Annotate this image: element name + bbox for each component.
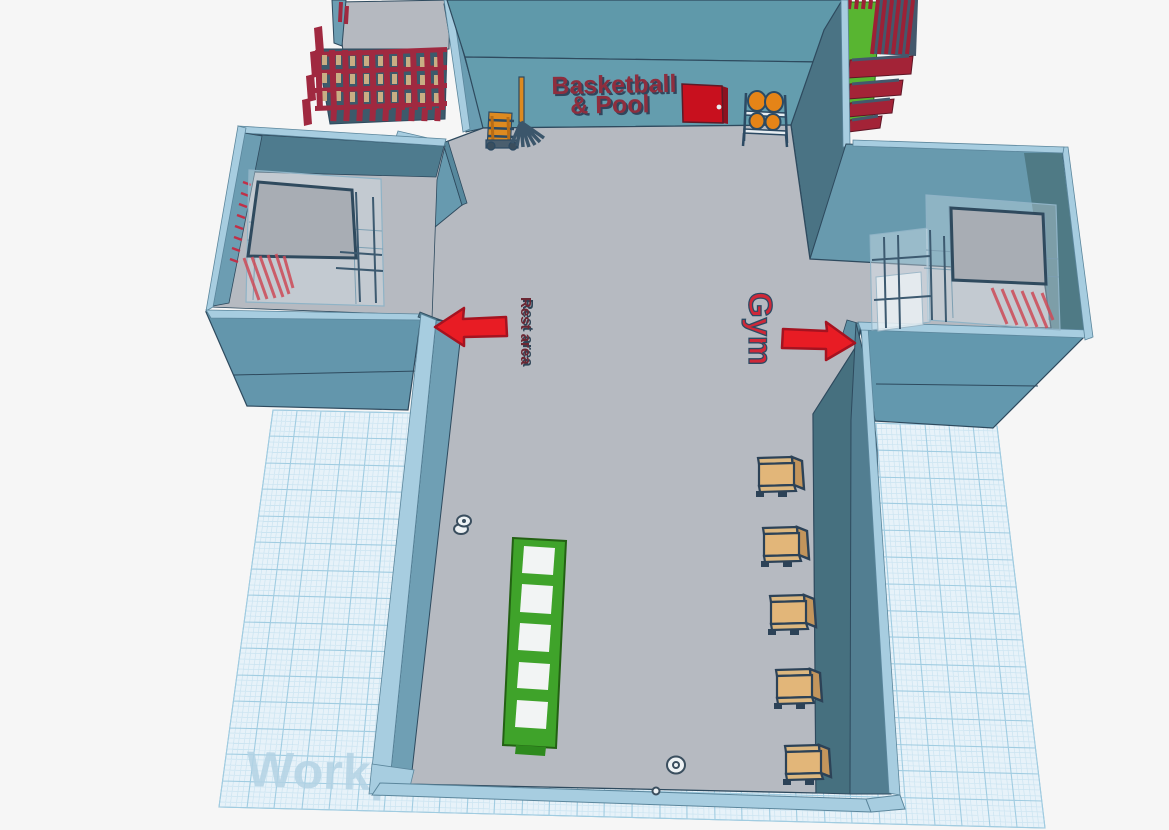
svg-text:& Pool: & Pool	[570, 90, 650, 119]
svg-text:Rest area: Rest area	[517, 297, 534, 365]
svg-text:Gym: Gym	[742, 292, 779, 365]
